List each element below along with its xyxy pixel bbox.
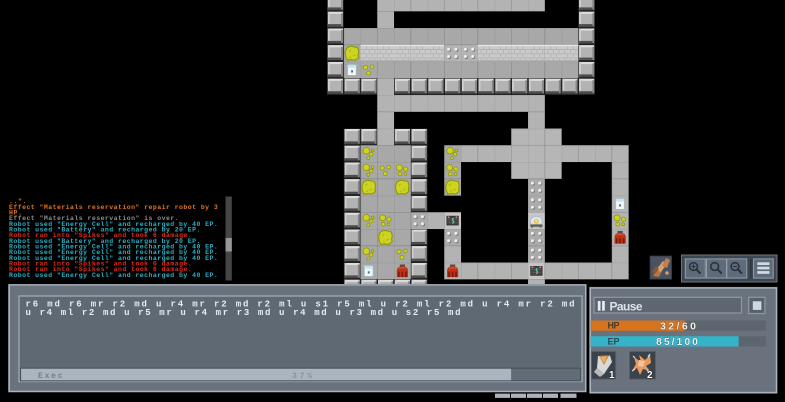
svg-text:u r4 ml r2 md u r5 mr u r4 mr: u r4 ml r2 md u r5 mr u r4 mr r3 md u r4…: [26, 308, 461, 318]
svg-text:32/60: 32/60: [660, 320, 696, 332]
svg-text:2: 2: [647, 370, 653, 381]
svg-text:Exec: Exec: [38, 372, 63, 381]
svg-text:37%: 37%: [292, 372, 312, 381]
svg-text:Robot used "Energy Cell" and r: Robot used "Energy Cell" and recharged b…: [9, 272, 218, 279]
svg-text:Pause: Pause: [610, 299, 643, 313]
svg-text:Effect "Materials reservation": Effect "Materials reservation" repair ro…: [9, 204, 218, 211]
svg-text:1: 1: [609, 370, 615, 381]
svg-text:EP: EP: [608, 336, 620, 346]
svg-text:HP: HP: [608, 321, 620, 331]
